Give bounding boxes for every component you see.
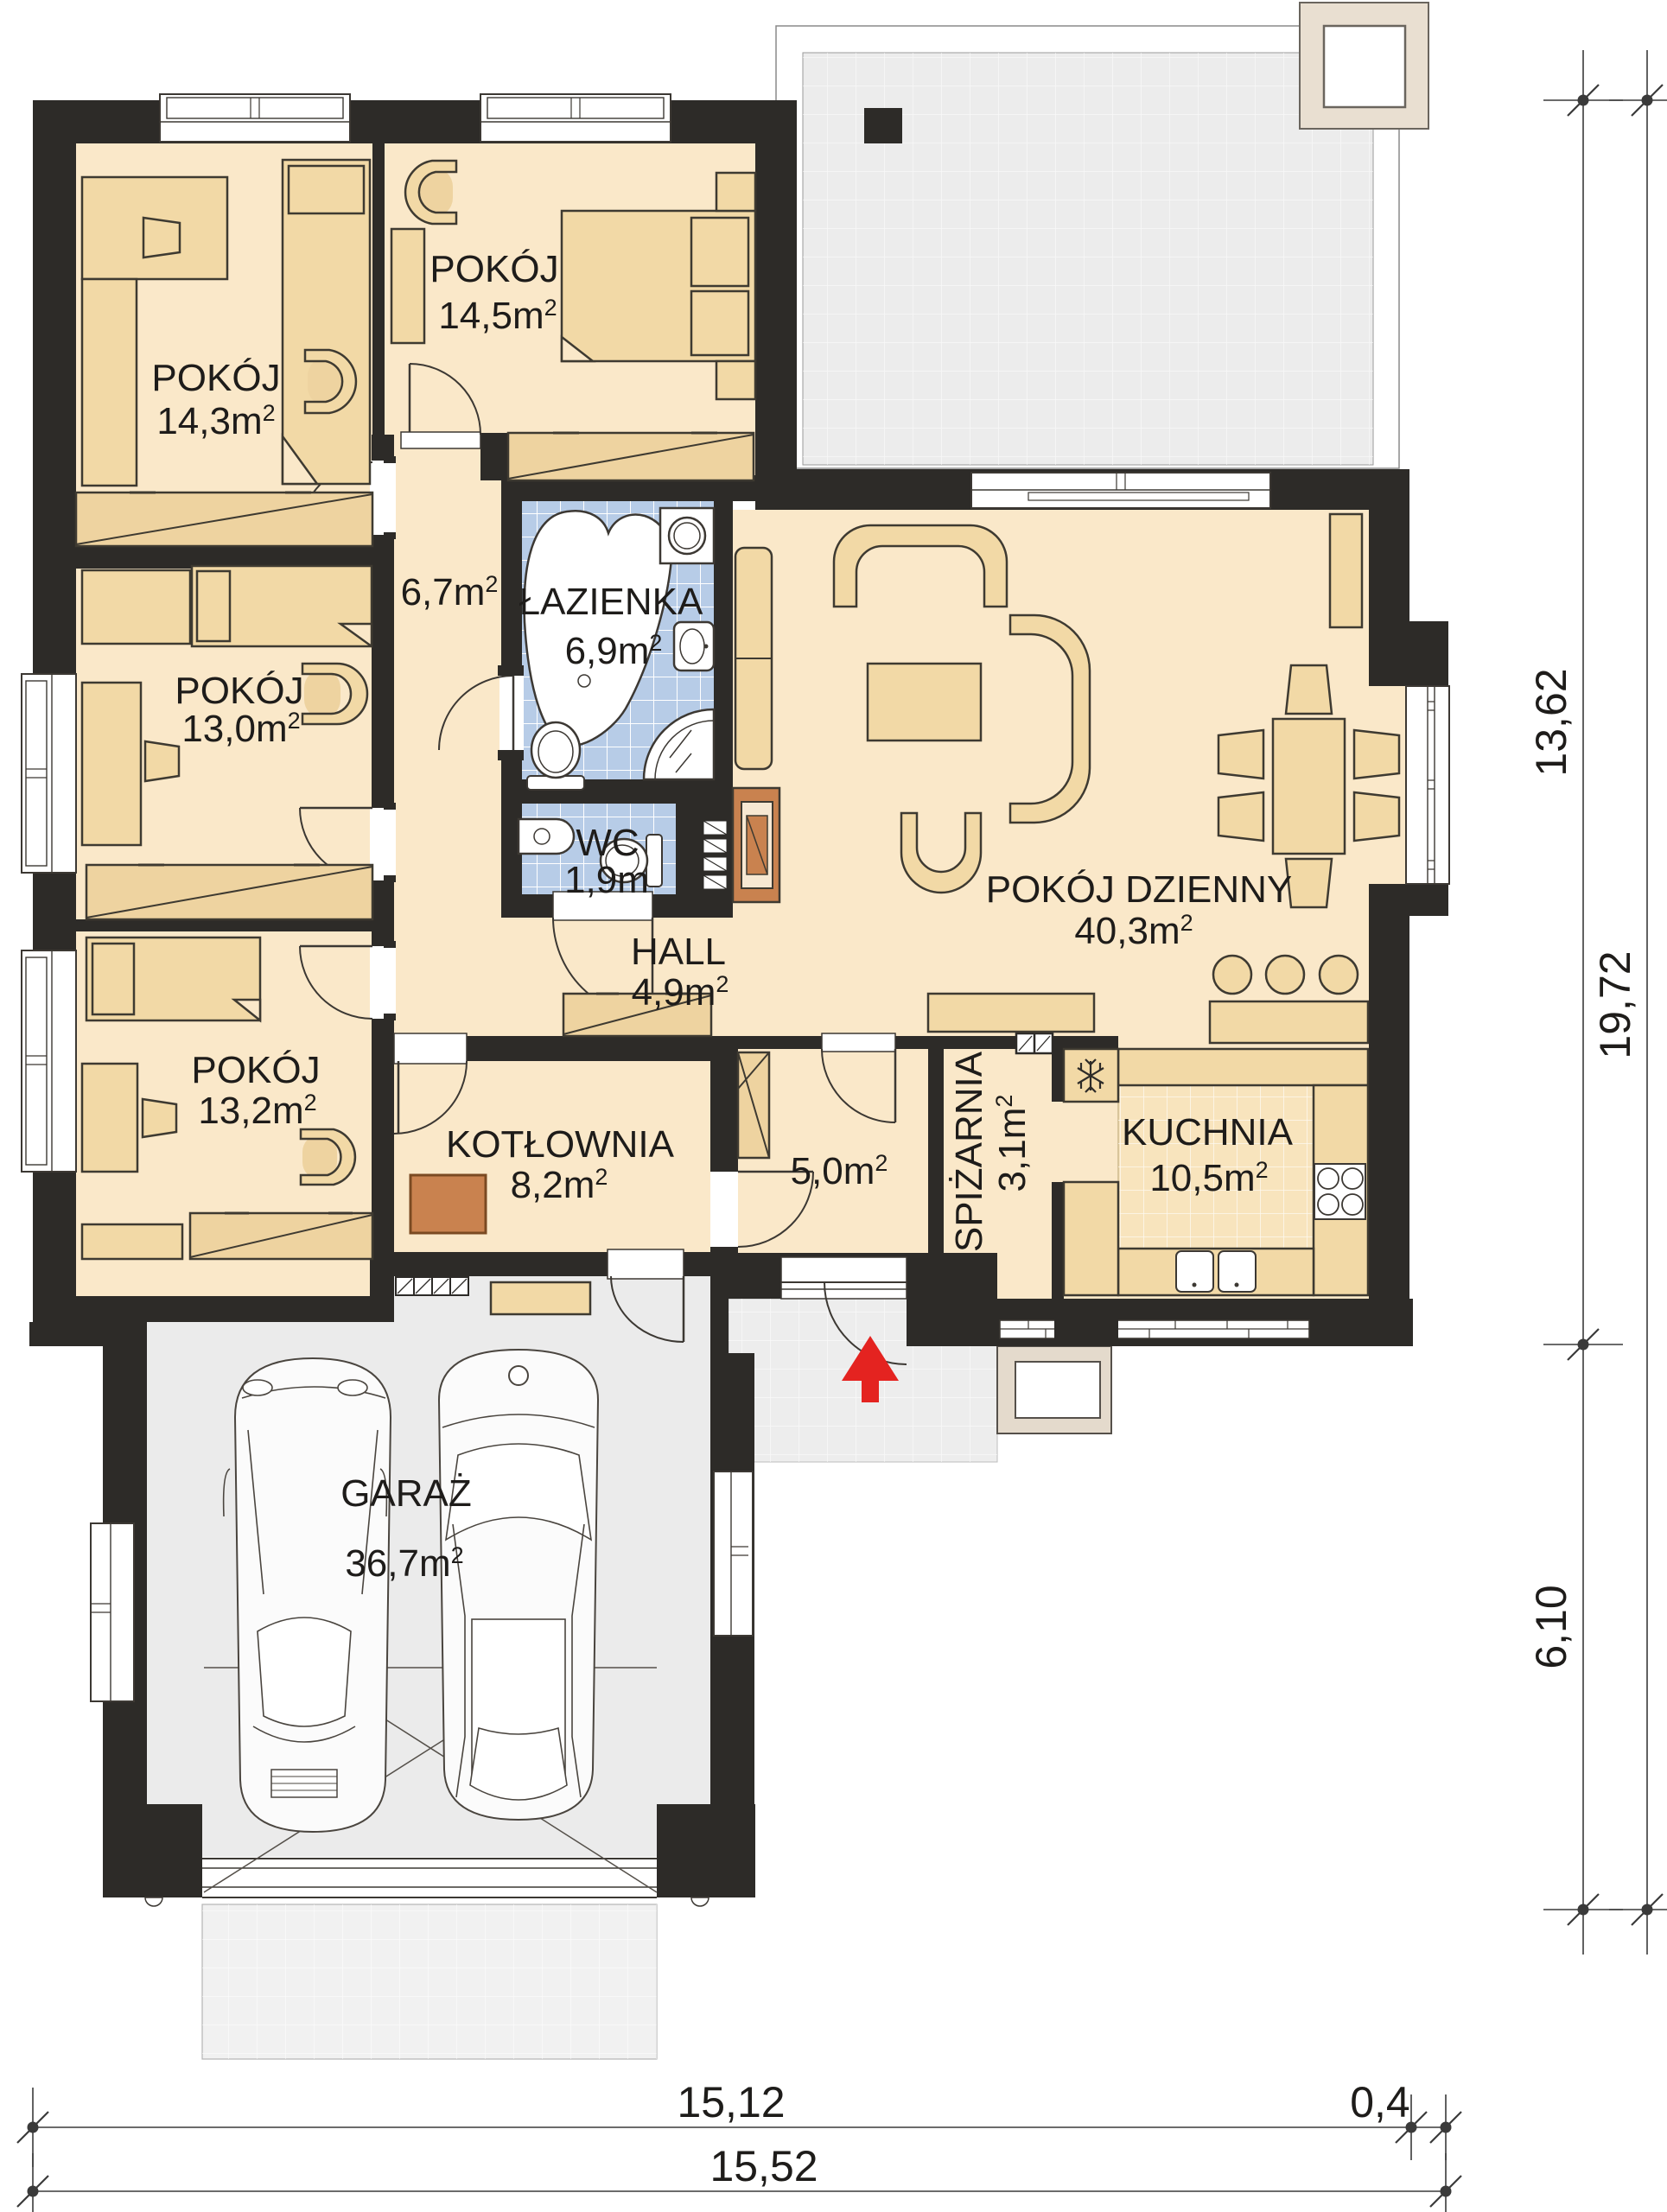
svg-text:8,2m2: 8,2m2 [511,1164,608,1206]
svg-text:15,52: 15,52 [709,2142,818,2190]
svg-text:40,3m2: 40,3m2 [1074,910,1193,952]
svg-text:13,62: 13,62 [1527,668,1575,776]
svg-text:3,1m2: 3,1m2 [991,1095,1034,1192]
svg-text:KUCHNIA: KUCHNIA [1122,1111,1294,1154]
svg-text:POKÓJ: POKÓJ [191,1049,320,1091]
svg-text:13,0m2: 13,0m2 [181,708,300,750]
svg-text:HALL: HALL [631,931,726,973]
svg-text:14,3m2: 14,3m2 [156,400,275,442]
svg-text:POKÓJ: POKÓJ [151,357,280,399]
svg-text:0,4: 0,4 [1350,2078,1410,2126]
svg-text:SPIŻARNIA: SPIŻARNIA [948,1051,990,1252]
svg-text:36,7m2: 36,7m2 [345,1542,463,1585]
svg-text:POKÓJ: POKÓJ [429,248,558,290]
svg-text:6,7m2: 6,7m2 [401,571,499,613]
svg-text:15,12: 15,12 [677,2078,785,2126]
svg-text:19,72: 19,72 [1591,950,1639,1058]
svg-text:14,5m2: 14,5m2 [438,295,557,337]
svg-text:10,5m2: 10,5m2 [1149,1157,1268,1199]
svg-text:6,10: 6,10 [1527,1585,1575,1669]
svg-text:GARAŻ: GARAŻ [340,1472,472,1515]
svg-text:WC: WC [576,822,639,864]
svg-text:6,9m2: 6,9m2 [565,630,663,672]
svg-text:POKÓJ: POKÓJ [175,670,303,712]
svg-text:1,9m: 1,9m [564,859,649,901]
svg-text:KOTŁOWNIA: KOTŁOWNIA [446,1123,675,1166]
svg-text:13,2m2: 13,2m2 [198,1090,316,1132]
svg-text:POKÓJ DZIENNY: POKÓJ DZIENNY [986,868,1293,911]
svg-text:5,0m2: 5,0m2 [791,1150,888,1192]
svg-text:4,9m2: 4,9m2 [632,971,729,1014]
svg-text:ŁAZIENKA: ŁAZIENKA [519,581,703,623]
